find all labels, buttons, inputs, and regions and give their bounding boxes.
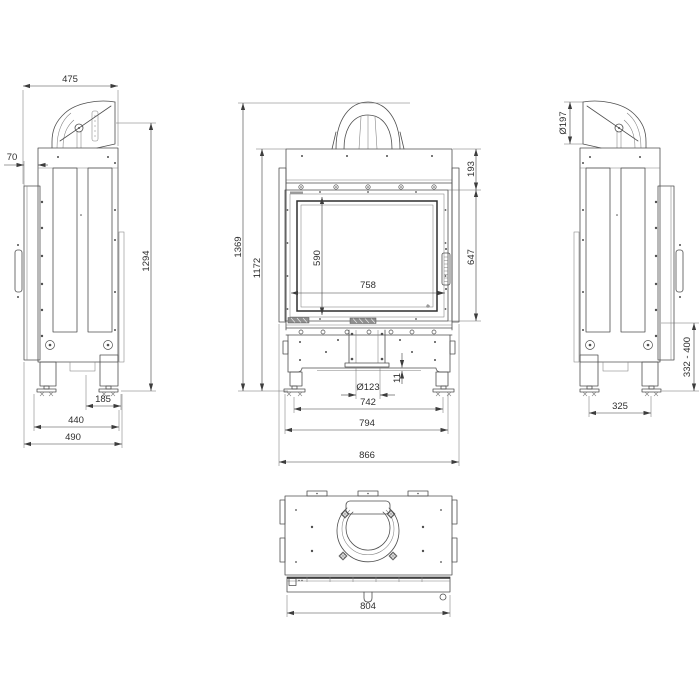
dim-foot-spacing-label: 325 <box>612 401 628 412</box>
technical-drawing: 475 70 1294 185 440 490 <box>0 0 700 700</box>
dim-foot-inset-label: 185 <box>95 394 111 405</box>
drawing-page: 475 70 1294 185 440 490 <box>0 0 700 700</box>
dim-door-height-label: 647 <box>466 249 477 265</box>
dim-top-panel-height-label: 193 <box>466 161 477 177</box>
dim-depth-label: 475 <box>62 74 78 85</box>
dim-outlet-diameter-label: Ø123 <box>356 382 379 393</box>
dim-flue-axis-height-label: 1294 <box>141 250 152 271</box>
dim-foot-plate-span-label: 794 <box>359 418 375 429</box>
dim-glass-height-label: 590 <box>312 250 323 266</box>
vent-grille <box>288 318 309 324</box>
dim-glass-width-label: 758 <box>360 280 376 291</box>
dim-total-depth-label: 490 <box>65 432 81 443</box>
dim-flue-diameter-label: Ø197 <box>558 111 569 134</box>
dim-lip-height-label: 11 <box>392 373 403 383</box>
dim-foot-axis-span-label: 742 <box>360 397 376 408</box>
brand-mark <box>290 192 303 195</box>
dim-door-offset-label: 70 <box>7 152 18 163</box>
dim-total-height-label: 1369 <box>233 236 244 257</box>
dim-foot-span-label: 440 <box>68 415 84 426</box>
dim-overall-width-label: 866 <box>359 450 375 461</box>
vent-grille <box>350 318 376 324</box>
background <box>0 0 700 700</box>
dim-front-width-label: 804 <box>360 601 376 612</box>
dim-body-height-label: 1172 <box>252 258 263 278</box>
dim-base-clearance-label: 332 - 400 <box>682 337 693 377</box>
